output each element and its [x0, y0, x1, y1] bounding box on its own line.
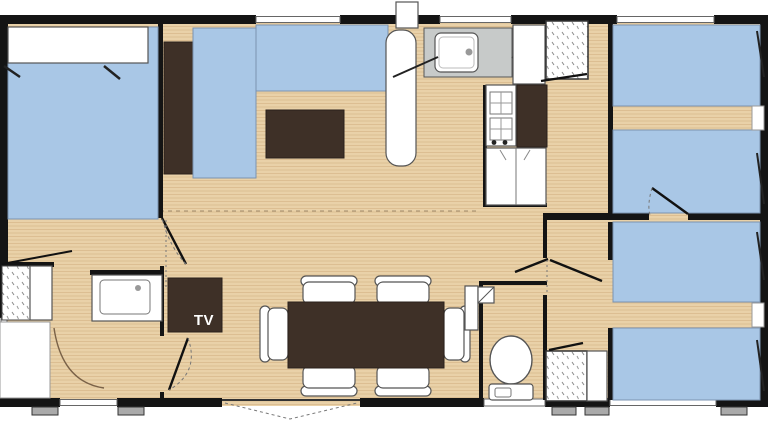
- bathroom-floor-mat: [0, 322, 50, 398]
- wall: [360, 398, 484, 407]
- step: [32, 407, 58, 415]
- wall-hall: [543, 218, 547, 258]
- wall-master-bedroom: [158, 18, 163, 218]
- wall-between-bedrooms: [543, 213, 649, 220]
- shower-tray: [546, 351, 587, 401]
- wall-bedroom2: [608, 328, 613, 400]
- floorplan: TV: [0, 0, 768, 432]
- tv-label: TV: [194, 312, 214, 329]
- vanity-faucet: [135, 285, 141, 291]
- chair: [303, 282, 355, 304]
- kitchen-tall-cabinet: [517, 85, 547, 147]
- step: [118, 407, 144, 415]
- walkway-end: [752, 106, 764, 130]
- floorplan-drawing: TV: [0, 0, 768, 432]
- chair: [268, 308, 288, 360]
- chair: [303, 366, 355, 388]
- chair: [377, 366, 429, 388]
- window: [60, 400, 117, 406]
- shower-room-bottom: [546, 343, 607, 401]
- wall: [117, 398, 222, 407]
- corner-sofa-side: [193, 28, 256, 178]
- single-bed: [613, 328, 760, 400]
- dining-table: [288, 302, 444, 368]
- wall-bedroom2: [608, 222, 613, 260]
- vent-column: [396, 2, 418, 28]
- fridge-cabinet: [513, 25, 545, 84]
- wall: [340, 15, 440, 24]
- vanity-basin: [100, 280, 150, 314]
- shower-cabin: [587, 351, 607, 401]
- fridge-column: [386, 30, 416, 166]
- toilet-bowl: [490, 336, 532, 384]
- stove-knob: [503, 140, 508, 145]
- chair: [377, 282, 429, 304]
- steps: [32, 407, 747, 415]
- shower-cabin: [30, 266, 52, 320]
- stove-knob: [492, 140, 497, 145]
- wall-wc: [479, 281, 547, 285]
- wall: [714, 15, 768, 24]
- heater-panel: [465, 286, 478, 330]
- window: [617, 17, 714, 23]
- shower-tray: [2, 266, 30, 320]
- step: [552, 407, 576, 415]
- step: [721, 407, 747, 415]
- bed-headboard: [8, 27, 148, 63]
- wall: [0, 398, 60, 407]
- faucet: [466, 49, 473, 56]
- coffee-table: [266, 110, 344, 158]
- single-bed: [613, 130, 760, 213]
- wall-bathroom: [160, 392, 164, 399]
- step: [585, 407, 609, 415]
- walkway-end: [752, 303, 764, 327]
- wall-bathroom: [90, 270, 163, 275]
- shower-tray: [546, 21, 588, 79]
- window: [256, 17, 340, 23]
- wall-hall-bedroom: [608, 18, 613, 218]
- wardrobe: [164, 42, 193, 174]
- corner-sofa-top: [256, 25, 388, 91]
- wall: [0, 15, 256, 24]
- shower-room-top: [541, 21, 588, 81]
- window: [440, 17, 511, 23]
- chair: [444, 308, 464, 360]
- single-bed: [613, 25, 760, 106]
- wall-between-bedrooms: [688, 213, 768, 220]
- single-bed: [613, 222, 760, 302]
